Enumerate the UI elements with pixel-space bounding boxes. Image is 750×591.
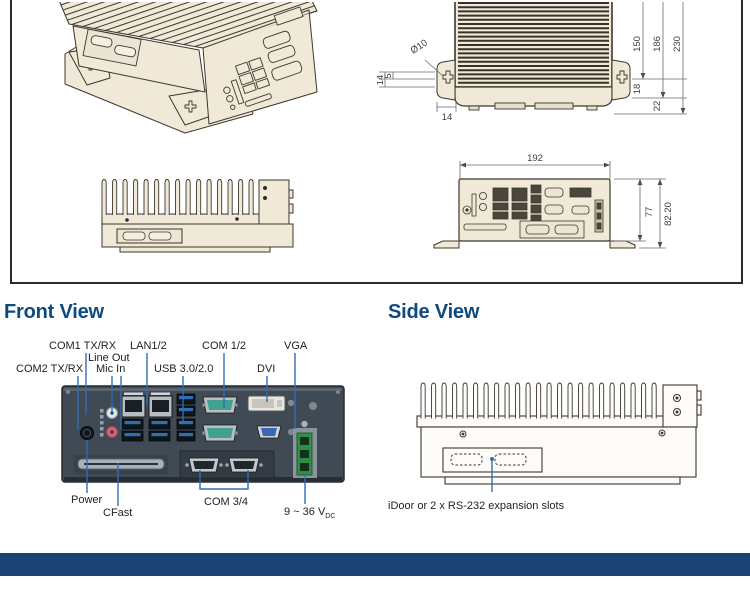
isometric-view-drawing (27, 2, 332, 137)
label-mic-in: Mic In (96, 364, 125, 375)
label-com12: COM 1/2 (202, 341, 246, 352)
dim-5: 5 (383, 73, 394, 78)
dc-subscript: DC (325, 513, 335, 520)
side-fins (421, 383, 656, 419)
footer-bar: Online Download www.advantech.com/produc… (0, 553, 750, 576)
side-view-title: Side View (388, 301, 479, 324)
datasheet-page: 150 186 230 18 22 14 5 Ø10 14 (0, 0, 750, 591)
box-side-view-drawing (87, 172, 327, 277)
dim-150: 150 (632, 36, 643, 52)
dim-77: 77 (644, 207, 655, 218)
label-com1: COM1 TX/RX (49, 341, 116, 352)
dim-192: 192 (527, 153, 543, 164)
label-usb: USB 3.0/2.0 (154, 364, 213, 375)
dim-82-20: 82.20 (663, 202, 674, 226)
label-dc-input: 9 ~ 36 VDC (284, 507, 335, 522)
dim-22: 22 (652, 101, 663, 112)
dim-18: 18 (632, 84, 643, 95)
top-view-drawing: 150 186 230 18 22 14 5 Ø10 14 (377, 2, 747, 127)
label-cfast: CFast (103, 508, 132, 519)
front-view-title: Front View (4, 301, 104, 324)
label-vga: VGA (284, 341, 307, 352)
label-com34: COM 3/4 (204, 497, 248, 508)
dim-14-bottom: 14 (442, 112, 453, 123)
label-com2: COM2 TX/RX (16, 364, 83, 375)
rear-view-drawing: 192 (402, 152, 747, 277)
side-view-drawing (385, 370, 715, 492)
label-power: Power (71, 495, 102, 506)
dim-230: 230 (672, 36, 683, 52)
mechanical-drawings-panel: 150 186 230 18 22 14 5 Ø10 14 (10, 0, 743, 284)
box-side-fins (102, 180, 253, 216)
label-lan: LAN1/2 (130, 341, 167, 352)
dim-hole: Ø10 (409, 38, 430, 57)
dim-186: 186 (652, 36, 663, 52)
side-view-caption: iDoor or 2 x RS-232 expansion slots (388, 500, 564, 512)
label-dvi: DVI (257, 364, 275, 375)
dc-value: 9 ~ 36 V (284, 506, 325, 518)
